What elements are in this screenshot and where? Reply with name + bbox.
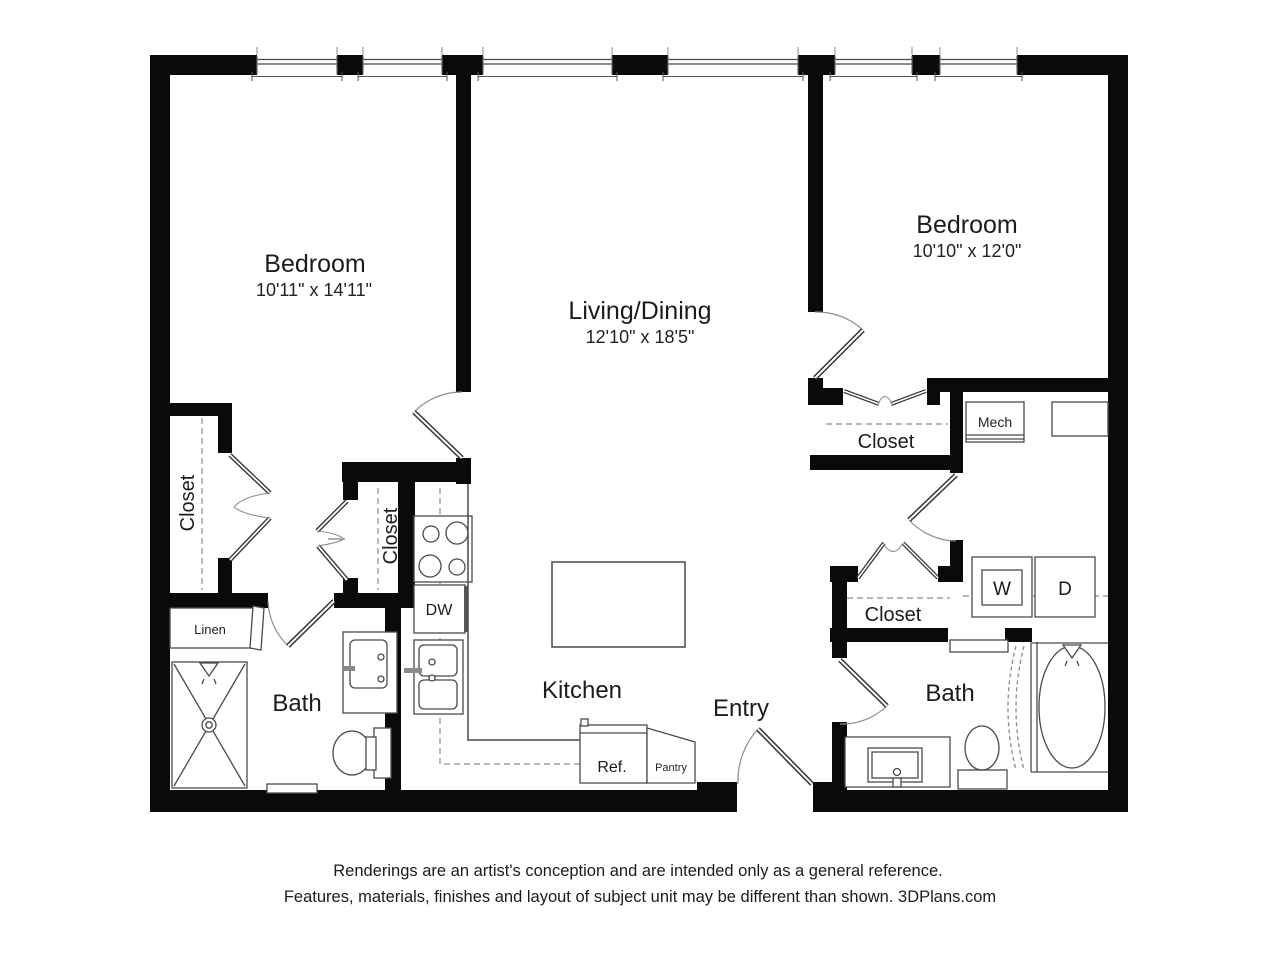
wall-segment: [1108, 55, 1128, 812]
room-label-closet-hall-left: Closet: [380, 507, 402, 564]
room-label-bath-right: Bath: [925, 680, 974, 707]
room-label-closet-bedroom-right: Closet: [858, 431, 915, 453]
french-doors-closet-hall-left: [317, 501, 347, 580]
wall-segment: [342, 462, 470, 482]
wall-segment: [830, 628, 948, 642]
wall-segment: [1017, 55, 1128, 75]
wall-segment: [808, 388, 843, 405]
wall-segment: [334, 593, 415, 608]
footer-line-2: Features, materials, finishes and layout…: [284, 888, 996, 906]
floor-plan-page: Bedroom 10'11" x 14'11" Bedroom 10'10" x…: [0, 0, 1280, 960]
window: [478, 47, 617, 81]
wall-segment: [442, 55, 483, 75]
kitchen-sink-icon: [404, 640, 463, 714]
room-label-bath-left: Bath: [272, 690, 321, 717]
wall-segment: [1005, 628, 1032, 642]
shelf-box: [1052, 402, 1108, 436]
wall-segment: [150, 55, 257, 75]
window: [358, 47, 447, 81]
kitchen-island: [552, 562, 685, 647]
label-dishwasher: DW: [426, 602, 454, 619]
wall-segment: [697, 782, 737, 792]
wall-segment: [798, 55, 835, 75]
wall-segment: [927, 378, 1128, 392]
vanity-sink-right-icon: [845, 737, 950, 787]
pantry-icon: [647, 728, 695, 783]
label-pantry: Pantry: [655, 762, 687, 774]
wall-segment: [912, 55, 940, 75]
wall-segment: [830, 566, 858, 582]
door-bedroom-left: [414, 392, 462, 458]
footer-line-1: Renderings are an artist's conception an…: [333, 862, 942, 880]
window: [663, 47, 803, 81]
shower-curtain: [1008, 646, 1024, 770]
room-label-kitchen: Kitchen: [542, 677, 622, 704]
bifold-doors-closet-bedroom-right: [844, 391, 926, 404]
wall-segment: [832, 580, 847, 658]
wall-segment: [808, 75, 823, 312]
wall-segment: [927, 388, 940, 405]
wall-segment: [218, 403, 232, 453]
door-bath-right: [840, 660, 887, 724]
room-dims-bedroom-left: 10'11" x 14'11": [256, 280, 372, 300]
room-label-closet-hall-right: Closet: [865, 604, 922, 626]
door-bath-left: [268, 601, 334, 646]
room-label-linen: Linen: [194, 622, 226, 637]
wall-segment: [343, 468, 358, 500]
french-doors-closet-left: [230, 455, 270, 560]
footer: Renderings are an artist's conception an…: [284, 862, 996, 906]
wall-segment: [337, 55, 363, 75]
wall-segment: [950, 392, 963, 473]
window: [830, 47, 917, 81]
shower-icon: [172, 662, 247, 788]
stove-icon: [414, 516, 472, 582]
room-label-closet-bedroom-left: Closet: [177, 474, 199, 531]
door-entry: [738, 729, 812, 784]
label-refrigerator: Ref.: [597, 759, 626, 776]
wall-segment: [150, 55, 170, 812]
label-dryer: D: [1058, 579, 1072, 600]
room-label-mech: Mech: [978, 414, 1012, 430]
bath-threshold: [267, 784, 317, 793]
wall-segment: [612, 55, 668, 75]
window: [935, 47, 1022, 81]
tub-icon: [1031, 642, 1108, 772]
label-washer: W: [993, 579, 1011, 600]
toilet-left-icon: [333, 728, 391, 778]
closet-doors: [230, 391, 938, 580]
room-label-bedroom-left: Bedroom: [264, 250, 365, 278]
door-hall-right: [909, 475, 956, 541]
room-dims-living-dining: 12'10" x 18'5": [586, 327, 695, 347]
wall-segment: [456, 75, 471, 392]
wall-segment: [218, 558, 232, 595]
bath-niche: [950, 640, 1008, 652]
room-label-bedroom-right: Bedroom: [916, 211, 1017, 239]
vanity-sink-left-icon: [343, 632, 397, 713]
wall-segment: [150, 790, 737, 812]
room-dims-bedroom-right: 10'10" x 12'0": [913, 241, 1022, 261]
fixtures: [170, 402, 1108, 793]
floor-plan-svg: Bedroom 10'11" x 14'11" Bedroom 10'10" x…: [0, 0, 1280, 960]
room-label-living-dining: Living/Dining: [568, 297, 711, 325]
wall-segment: [938, 566, 963, 582]
toilet-right-icon: [958, 726, 1007, 789]
wall-segment: [150, 593, 268, 608]
room-label-entry: Entry: [713, 695, 769, 722]
wall-segment: [810, 455, 963, 470]
bifold-doors-closet-hall-right: [858, 543, 938, 578]
wall-segment: [813, 790, 1128, 812]
door-bedroom-right: [815, 312, 863, 378]
window: [252, 47, 342, 81]
